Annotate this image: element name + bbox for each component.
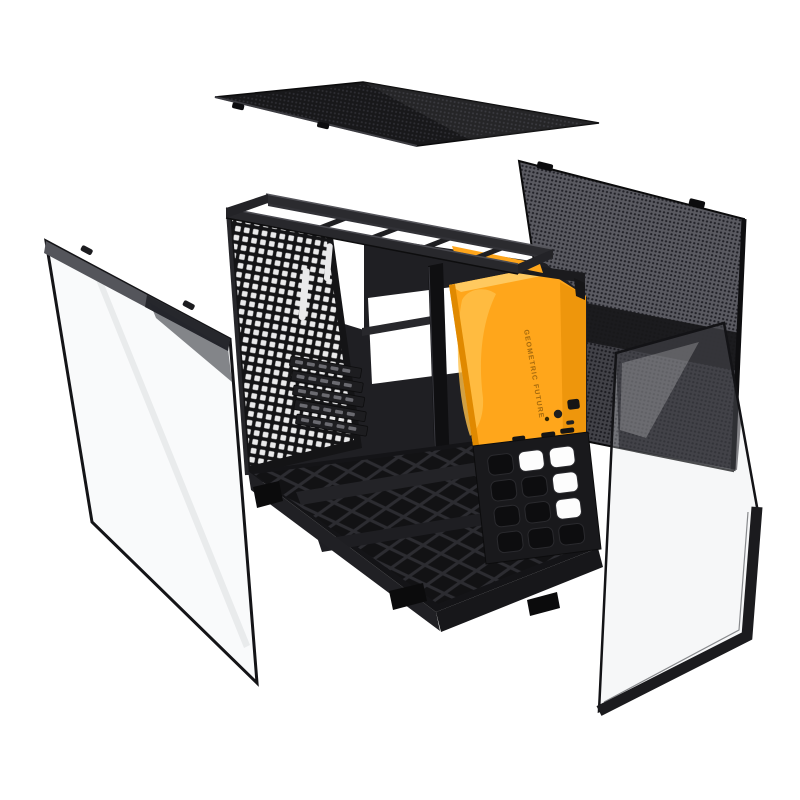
fan-mount-frame — [473, 432, 601, 564]
front-panel-side-shade — [560, 282, 586, 435]
io-led-hole — [545, 417, 549, 421]
left-glass-clip — [80, 245, 93, 256]
left-glass-clip — [182, 300, 195, 311]
pc-case-exploded-view: GEOMETRIC FUTURE — [0, 0, 800, 800]
top-mesh-panel — [215, 82, 599, 146]
right-glass-panel — [599, 323, 757, 711]
io-port-hole — [567, 399, 580, 410]
left-glass-panel — [44, 241, 257, 683]
front-panel-orange: GEOMETRIC FUTURE — [449, 259, 586, 454]
product-photo-canvas: GEOMETRIC FUTURE — [0, 0, 800, 800]
motherboard-window-cutout — [368, 286, 464, 384]
io-button-hole — [554, 410, 562, 418]
case-foot — [527, 592, 560, 616]
